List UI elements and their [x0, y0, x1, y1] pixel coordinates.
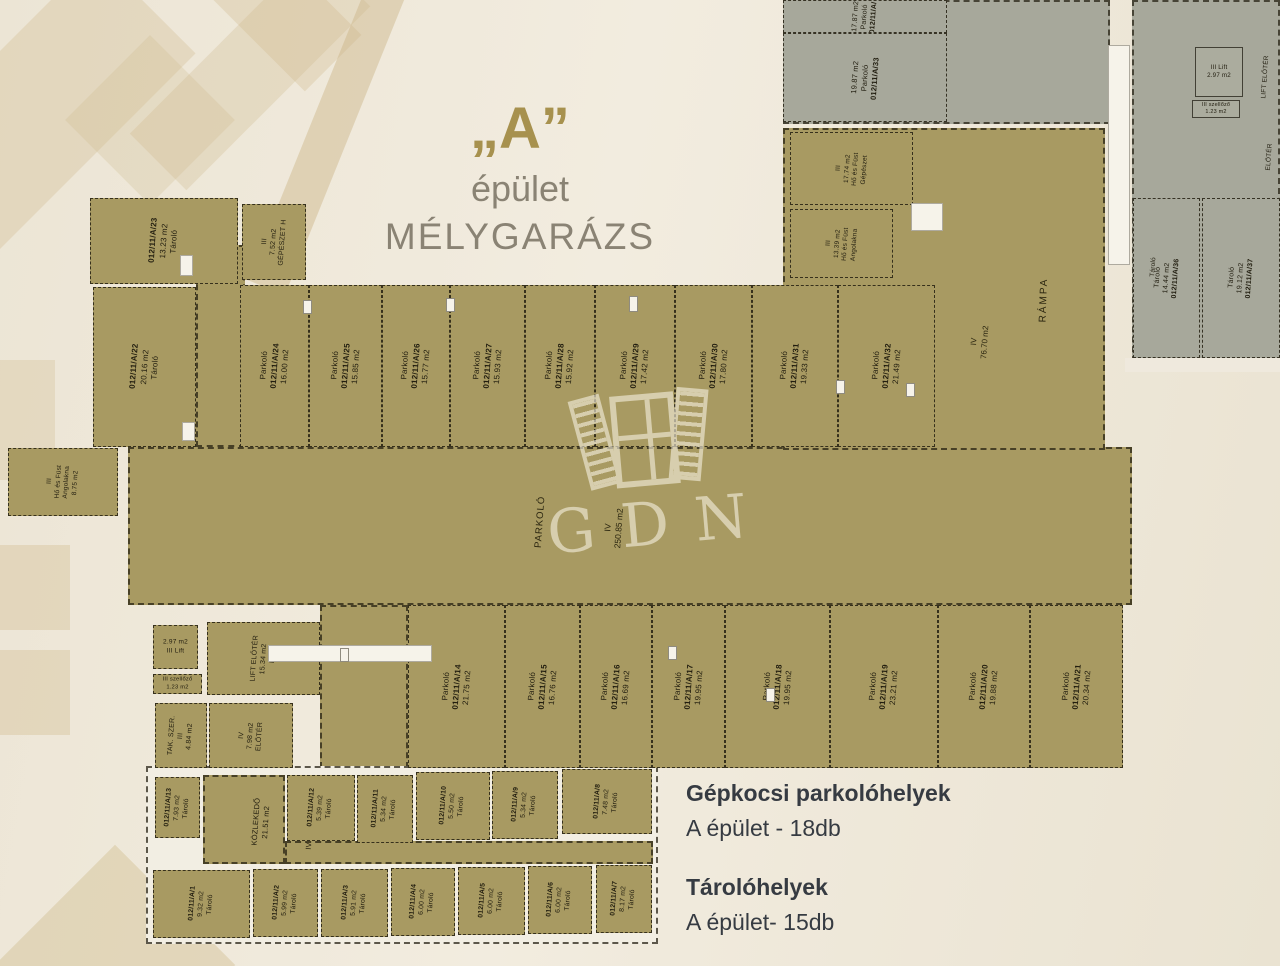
room-gep-e: III17.74 m2Hő és FüstGépészet — [790, 132, 913, 205]
door-notch — [766, 688, 775, 702]
wall-notch — [182, 422, 195, 441]
unit-012-11-A-16: Parkoló012/11/A/1616.69 m2 — [580, 605, 652, 768]
wall-notch — [911, 203, 943, 231]
unit-012-11-A-36: Tároló14.44 m2012/11/A/36 — [1133, 198, 1200, 358]
unit-012-11-A-21: Parkoló012/11/A/2120.34 m2 — [1030, 605, 1123, 768]
wall-strip — [1125, 358, 1280, 372]
legend-parking-count: A épület - 18db — [686, 815, 951, 842]
door-notch — [629, 296, 638, 312]
unit-012-11-A-24: Parkoló012/11/A/2416.00 m2 — [240, 285, 309, 447]
unit-012-11-A-8: 012/11/A/87.48 m2Tároló — [562, 769, 652, 834]
building-letter: „A” — [375, 100, 665, 158]
room-szel-w: III szellőző1.23 m2 — [153, 674, 202, 694]
unit-012-11-A-20: Parkoló012/11/A/2019.88 m2 — [938, 605, 1030, 768]
floorplan-photo: 012/11/A/19.32 m2Tároló012/11/A/25.99 m2… — [0, 0, 1280, 966]
unit-area: 5.91 m2 — [349, 885, 360, 920]
unit-area: 19.33 m2 — [799, 344, 813, 390]
central-parking-area: IV 250.85 m2 — [601, 507, 627, 549]
unit-area: 6.00 m2 — [486, 883, 497, 918]
room-gepeszet-h: III7.52 m2GÉPÉSZET H — [242, 204, 306, 280]
unit-area: 15.77 m2 — [420, 344, 434, 390]
room-label-line: 8.75 m2 — [70, 466, 81, 500]
unit-012-11-A-31: Parkoló012/11/A/3119.33 m2 — [752, 285, 838, 447]
door-notch — [836, 380, 845, 394]
unit-012-11-A-26: Parkoló012/11/A/2615.77 m2 — [382, 285, 450, 447]
room-elo-ne: ELŐTÉR — [1260, 132, 1280, 182]
legend: Gépkocsi parkolóhelyek A épület - 18db T… — [686, 780, 951, 936]
background-pattern-shape — [0, 545, 70, 630]
unit-012-11-A-3: 012/11/A/35.91 m2Tároló — [321, 869, 388, 937]
door-notch — [340, 648, 349, 662]
room-label-line: 4.84 m2 — [184, 716, 196, 756]
unit-012-11-A-13: 012/11/A/137.93 m2Tároló — [155, 777, 200, 838]
room-label-line: 1.23 m2 — [1202, 109, 1230, 116]
door-notch — [446, 298, 455, 312]
room-kozl-iv: IV — [300, 836, 318, 856]
unit-012-11-A-33: 19.87 m2Parkoló012/11/A/33 — [783, 33, 947, 122]
room-lift-ne: III Lift2.97 m2 — [1195, 47, 1243, 97]
unit-012-11-A-4: 012/11/A/46.00 m2Tároló — [391, 868, 455, 936]
unit-012-11-A-: 17.87 m2Parkoló012/11/A/ — [783, 0, 947, 33]
legend-parking-title: Gépkocsi parkolóhelyek — [686, 780, 951, 807]
legend-storage-count: A épület- 15db — [686, 909, 951, 936]
room-label-line: III Lift — [1207, 64, 1231, 72]
title-line3: MÉLYGARÁZS — [375, 216, 665, 258]
room-tak: TAK. SZER.III4.84 m2 — [155, 703, 207, 768]
unit-012-11-A-7: 012/11/A/78.17 m2Tároló — [596, 865, 652, 933]
room-szel-ne: III szellőző1.23 m2 — [1192, 100, 1240, 118]
unit-area: 19.88 m2 — [988, 664, 1002, 710]
unit-012-11-A-1: 012/11/A/19.32 m2Tároló — [153, 870, 250, 938]
unit-012-11-A-25: Parkoló012/11/A/2515.85 m2 — [309, 285, 382, 447]
unit-012-11-A-22: 012/11/A/2220.16 m2Tároló — [93, 287, 196, 447]
room-label-line: 21.51 m2 — [259, 798, 272, 846]
unit-area: 23.21 m2 — [888, 664, 902, 710]
unit-012-11-A-18: Parkoló012/11/A/1819.95 m2 — [725, 605, 830, 768]
unit-012-11-A-27: Parkoló012/11/A/2715.93 m2 — [450, 285, 525, 447]
room-label-line: IV — [304, 842, 314, 850]
title-line2: épület — [375, 168, 665, 210]
room-label-line: ELŐTÉR — [255, 721, 266, 751]
unit-id: 012/11/A/ — [868, 1, 879, 33]
unit-id: 012/11/A/33 — [868, 57, 881, 100]
plan-title: „A” épület MÉLYGARÁZS — [375, 100, 665, 258]
background-pattern-shape — [0, 650, 70, 735]
unit-area: 5.99 m2 — [280, 885, 291, 920]
room-label-line: GÉPÉSZET H — [277, 219, 289, 266]
unit-id: 012/11/A/37 — [1244, 258, 1256, 299]
unit-012-11-A-19: Parkoló012/11/A/1923.21 m2 — [830, 605, 938, 768]
legend-storage-title: Tárolóhelyek — [686, 874, 951, 901]
unit-012-11-A-15: Parkoló012/11/A/1516.76 m2 — [505, 605, 580, 768]
room-label-line: 1.23 m2 — [163, 684, 193, 692]
stairs-bar — [268, 645, 432, 662]
unit-area: 17.42 m2 — [639, 344, 653, 390]
room-label-line: 2.97 m2 — [163, 638, 188, 647]
unit-012-11-A-12: 012/11/A/125.39 m2Tároló — [287, 775, 355, 841]
room-label-line: LIFT ELŐTÉR — [1260, 55, 1272, 99]
room-label-line: 2.97 m2 — [1207, 72, 1231, 80]
room-ang-w: IIIHő és FüstAngolakna8.75 m2 — [8, 448, 118, 516]
unit-012-11-A-28: Parkoló012/11/A/2815.92 m2 — [525, 285, 595, 447]
room-tarolo-ne: Tároló — [1146, 250, 1162, 284]
unit-012-11-A-30: Parkoló012/11/A/3017.80 m2 — [675, 285, 752, 447]
door-notch — [303, 300, 312, 314]
unit-012-11-A-10: 012/11/A/105.50 m2Tároló — [416, 772, 490, 840]
unit-012-11-A-2: 012/11/A/25.99 m2Tároló — [253, 869, 318, 937]
unit-area: 9.32 m2 — [196, 886, 207, 921]
room-label-line: III szellőző — [1202, 102, 1230, 109]
room-ang-e: III13.39 m2Hő és FüstAngolakna — [790, 209, 893, 278]
unit-012-11-A-32: Parkoló012/11/A/3221.49 m2 — [838, 285, 935, 447]
room-label-line: III Lift — [163, 647, 188, 656]
room-lift-w: 2.97 m2III Lift — [153, 625, 198, 669]
unit-012-11-A-17: Parkoló012/11/A/1719.95 m2 — [652, 605, 725, 768]
room-label-line: ELŐTÉR — [1265, 143, 1275, 171]
door-notch — [906, 383, 915, 397]
door-notch — [668, 646, 677, 660]
unit-012-11-A-37: Tároló19.12 m2012/11/A/37 — [1202, 198, 1280, 358]
room-label-line: Tároló — [1149, 257, 1159, 277]
ramp-area: IV 76.70 m2 — [968, 325, 992, 360]
unit-012-11-A-23: 012/11/A/2313.23 m2Tároló — [90, 198, 238, 284]
zone-central-parking — [128, 447, 1132, 605]
unit-012-11-A-6: 012/11/A/66.00 m2Tároló — [528, 866, 592, 934]
unit-area: 15.92 m2 — [564, 344, 578, 390]
room-label-line: III szellőző — [163, 676, 193, 684]
room-lift-el-ne: LIFT ELŐTÉR — [1254, 42, 1278, 112]
zone-row2-corridor — [320, 605, 408, 768]
zone-storage-corridor-horizontal — [285, 841, 653, 864]
room-kozl: KÖZLEKEDŐ21.51 m2 — [236, 782, 286, 862]
wall-column — [1108, 45, 1130, 265]
wall-notch — [180, 255, 193, 276]
room-elo-w: IV7.98 m2ELŐTÉR — [209, 703, 293, 768]
unit-area: 16.69 m2 — [620, 664, 634, 710]
unit-012-11-A-14: Parkoló012/11/A/1421.75 m2 — [408, 605, 505, 768]
unit-012-11-A-9: 012/11/A/95.34 m2Tároló — [492, 771, 558, 839]
unit-012-11-A-5: 012/11/A/56.00 m2Tároló — [458, 867, 525, 935]
unit-012-11-A-11: 012/11/A/115.34 m2Tároló — [357, 775, 413, 843]
ramp-label: RÁMPA — [1036, 277, 1051, 322]
